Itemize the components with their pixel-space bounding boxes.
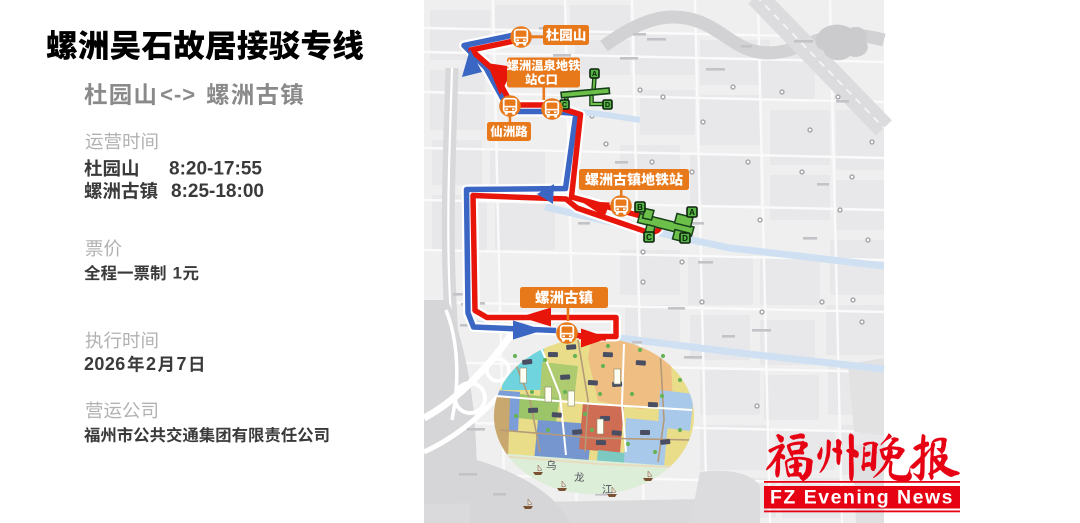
- svg-text:FZ Evening News: FZ Evening News: [770, 487, 954, 509]
- svg-text:C: C: [562, 102, 567, 109]
- svg-text:D: D: [605, 102, 610, 109]
- svg-text:B: B: [637, 203, 643, 212]
- svg-text:1: 1: [173, 264, 182, 283]
- svg-text:<->: <->: [160, 82, 196, 107]
- svg-text:D: D: [682, 234, 688, 243]
- svg-text:7: 7: [177, 354, 187, 374]
- svg-text:2026: 2026: [84, 354, 126, 374]
- svg-text:A: A: [689, 208, 695, 217]
- svg-text:C: C: [646, 233, 652, 242]
- svg-text:A: A: [592, 71, 597, 78]
- svg-text:8:25-18:00: 8:25-18:00: [171, 181, 264, 202]
- svg-text:2: 2: [146, 354, 156, 374]
- svg-text:8:20-17:55: 8:20-17:55: [169, 159, 262, 180]
